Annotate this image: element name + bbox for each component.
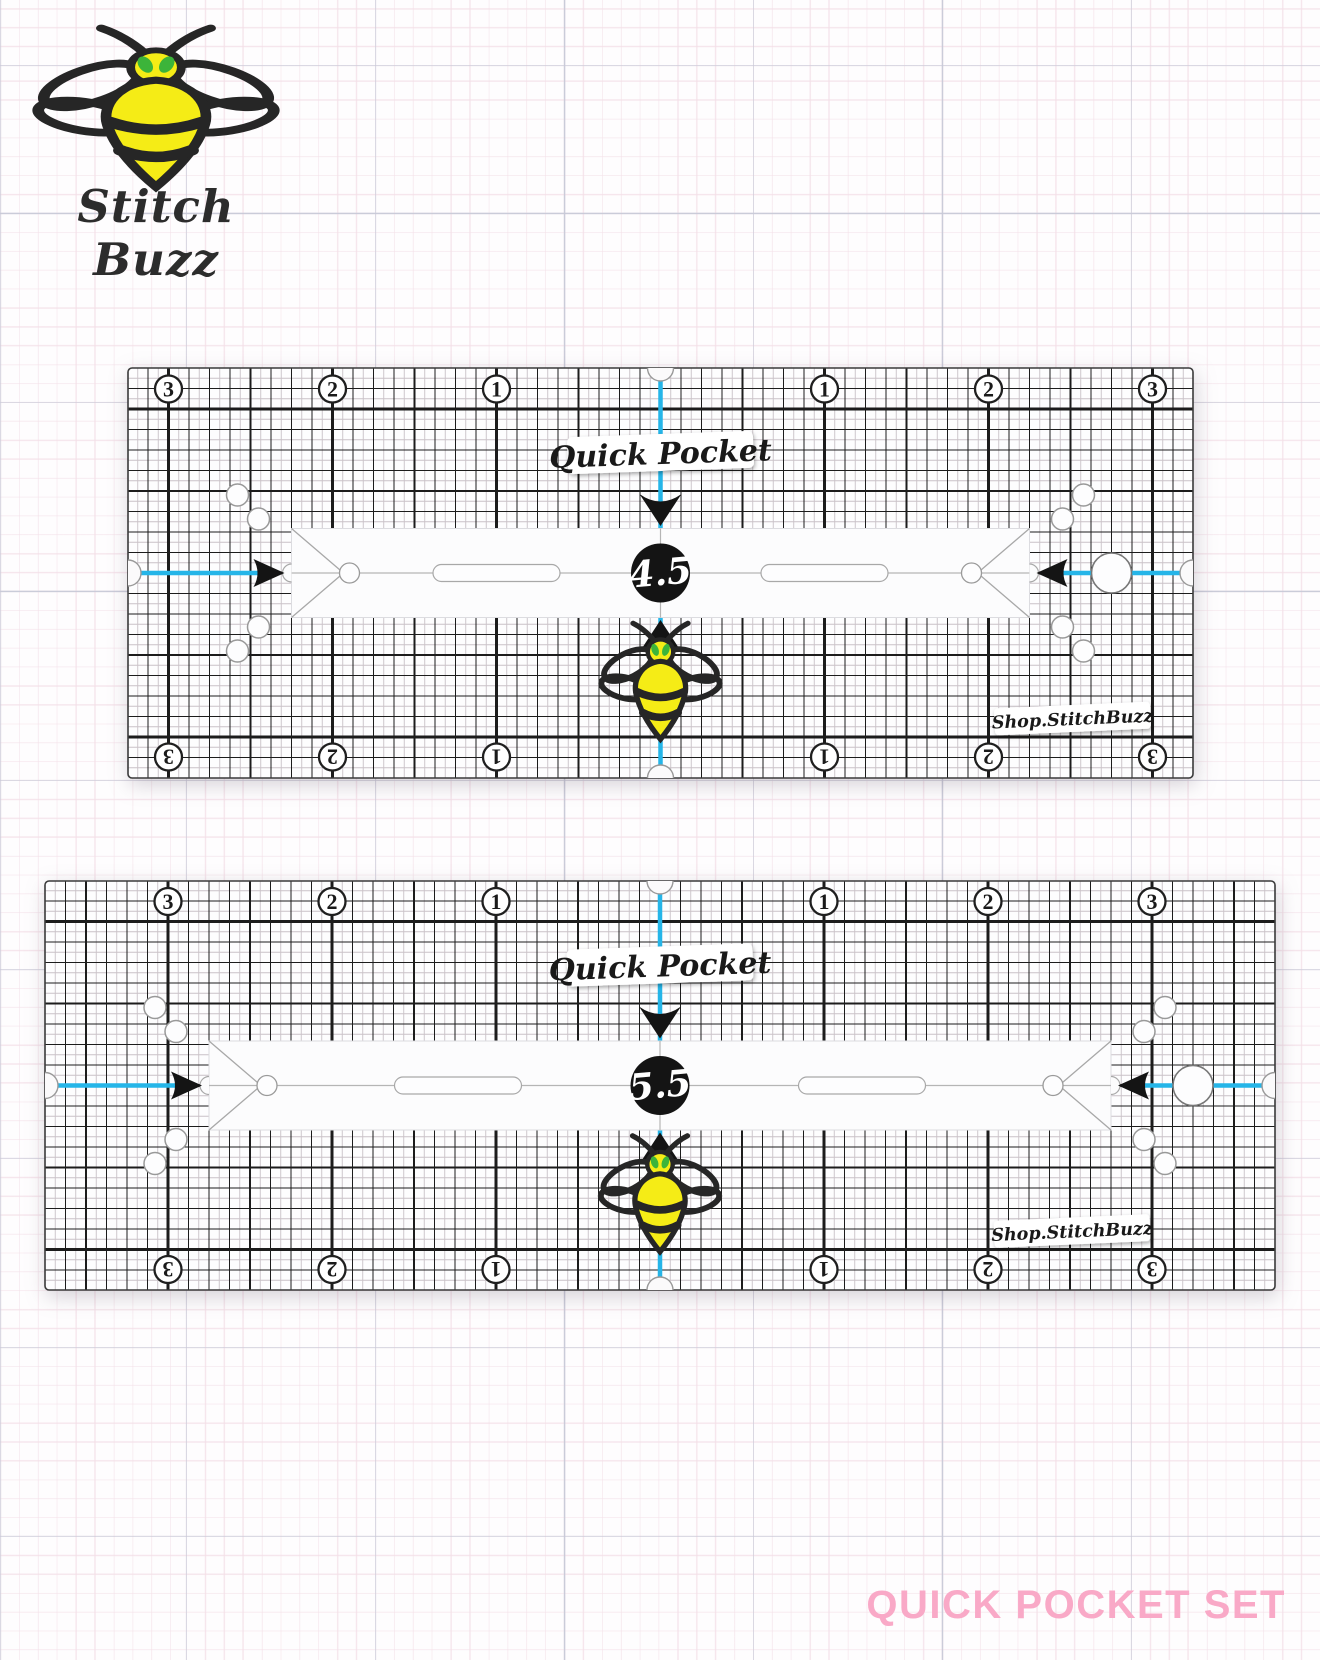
bee-icon: [33, 28, 278, 187]
apex-hole: [962, 563, 982, 583]
quick-pocket-ruler-4-5: 332211112233Quick Pocket4.5Shop.StitchBu…: [104, 344, 1217, 802]
inch-number: 1: [811, 744, 838, 771]
drill-hole: [248, 616, 270, 638]
inch-number: 2: [319, 376, 346, 403]
drill-hole: [227, 640, 249, 662]
svg-text:3: 3: [163, 377, 174, 402]
drill-hole: [1073, 484, 1095, 506]
svg-text:3: 3: [163, 745, 174, 770]
svg-text:3: 3: [163, 889, 174, 914]
drill-hole: [1133, 1129, 1155, 1151]
apex-hole: [257, 1076, 277, 1096]
svg-text:5.5: 5.5: [627, 1062, 693, 1109]
product-title: QUICK POCKET SET: [866, 1583, 1286, 1628]
svg-text:2: 2: [983, 745, 994, 770]
inch-number: 3: [1139, 376, 1166, 403]
slot: [395, 1077, 522, 1094]
slot: [433, 565, 560, 582]
drill-hole: [1133, 1021, 1155, 1043]
inch-number: 1: [483, 376, 510, 403]
svg-text:3: 3: [1147, 377, 1158, 402]
inch-number: 3: [155, 888, 182, 915]
svg-text:3: 3: [1147, 1257, 1158, 1282]
svg-text:2: 2: [983, 377, 994, 402]
svg-text:1: 1: [491, 377, 502, 402]
inch-number: 1: [483, 888, 510, 915]
inch-number: 1: [811, 888, 838, 915]
inch-number: 3: [155, 1256, 182, 1283]
svg-text:1: 1: [819, 1257, 830, 1282]
inch-number: 3: [1139, 888, 1166, 915]
inch-number: 3: [155, 744, 182, 771]
drill-hole: [1154, 997, 1176, 1019]
inch-number: 2: [319, 888, 346, 915]
svg-text:3: 3: [163, 1257, 174, 1282]
large-hole: [1173, 1066, 1213, 1106]
inch-number: 3: [155, 376, 182, 403]
svg-text:1: 1: [819, 745, 830, 770]
drill-hole: [165, 1021, 187, 1043]
svg-text:2: 2: [327, 1257, 338, 1282]
drill-hole: [1154, 1153, 1176, 1175]
drill-hole: [144, 1153, 166, 1175]
inch-number: 3: [1139, 1256, 1166, 1283]
svg-text:1: 1: [819, 377, 830, 402]
svg-text:4.5: 4.5: [627, 549, 693, 596]
svg-text:3: 3: [1147, 889, 1158, 914]
apex-hole: [1043, 1076, 1063, 1096]
inch-number: 3: [1139, 744, 1166, 771]
inch-number: 2: [319, 744, 346, 771]
drill-hole: [144, 997, 166, 1019]
slot: [761, 565, 888, 582]
inch-number: 2: [975, 1256, 1002, 1283]
svg-text:1: 1: [491, 745, 502, 770]
drill-hole: [165, 1129, 187, 1151]
slot: [799, 1077, 926, 1094]
drill-hole: [248, 508, 270, 530]
quick-pocket-ruler-5-5: 332211112233Quick Pocket5.5Shop.StitchBu…: [21, 857, 1299, 1314]
svg-text:1: 1: [819, 889, 830, 914]
inch-number: 2: [975, 744, 1002, 771]
inch-number: 2: [975, 888, 1002, 915]
svg-text:2: 2: [327, 889, 338, 914]
svg-text:2: 2: [327, 377, 338, 402]
brand-logo-text: Stitch Buzz: [22, 180, 290, 286]
apex-hole: [340, 563, 360, 583]
inch-number: 1: [483, 1256, 510, 1283]
drill-hole: [1052, 508, 1074, 530]
inch-number: 2: [319, 1256, 346, 1283]
drill-hole: [1052, 616, 1074, 638]
svg-text:2: 2: [327, 745, 338, 770]
inch-number: 2: [975, 376, 1002, 403]
svg-text:2: 2: [983, 1257, 994, 1282]
drill-hole: [1073, 640, 1095, 662]
inch-number: 1: [483, 744, 510, 771]
inch-number: 1: [811, 376, 838, 403]
drill-hole: [227, 484, 249, 506]
svg-text:1: 1: [491, 889, 502, 914]
large-hole: [1092, 553, 1132, 593]
quick-pocket-label: Quick Pocket: [548, 943, 772, 989]
quick-pocket-label: Quick Pocket: [549, 430, 773, 476]
svg-text:2: 2: [983, 889, 994, 914]
inch-number: 1: [811, 1256, 838, 1283]
svg-text:1: 1: [491, 1257, 502, 1282]
page: Stitch Buzz 332211112233Quick Pocket4.5S…: [0, 0, 1320, 1660]
brand-logo: Stitch Buzz: [8, 2, 298, 262]
svg-text:3: 3: [1147, 745, 1158, 770]
